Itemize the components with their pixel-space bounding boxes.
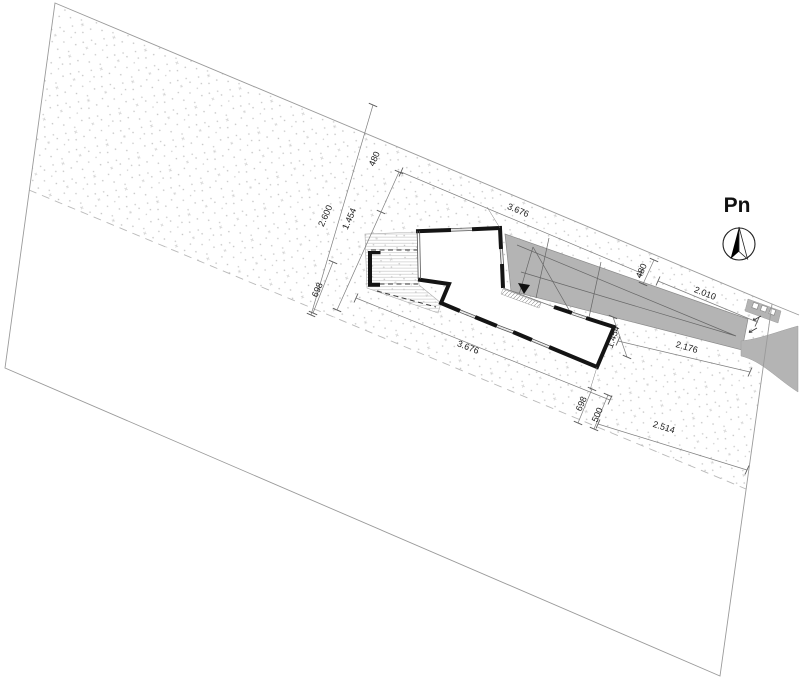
north-label: Pn bbox=[724, 194, 751, 217]
north-arrow: Pn bbox=[723, 194, 755, 260]
site-plan-drawing: 3.676 480 1.454 2.600 698 3.676 698 500 … bbox=[0, 0, 800, 689]
north-needle-light bbox=[739, 227, 748, 259]
site-plan-page: 3.676 480 1.454 2.600 698 3.676 698 500 … bbox=[0, 0, 800, 689]
north-needle-dark bbox=[731, 227, 740, 259]
